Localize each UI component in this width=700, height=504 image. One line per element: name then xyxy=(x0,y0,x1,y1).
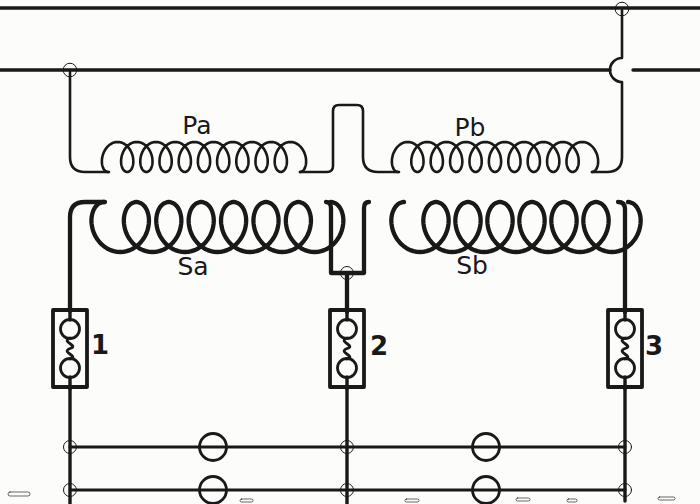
fuse-terminal-bottom xyxy=(61,359,80,378)
caption-remnant xyxy=(240,499,253,502)
secondary-left-lead-wire xyxy=(70,202,105,311)
scanned-schematic-page: Pa Pb Sa Sb 1 2 3 xyxy=(0,0,700,504)
fuse-block-3 xyxy=(608,308,642,501)
secondary-center-tap-wire xyxy=(326,202,369,312)
label-fuse-2: 2 xyxy=(370,331,388,361)
label-fuse-3: 3 xyxy=(645,331,663,361)
caption-remnant xyxy=(658,497,675,500)
caption-remnant xyxy=(567,499,577,502)
fuse-terminal-top xyxy=(616,320,635,339)
caption-remnant xyxy=(405,499,419,502)
caption-remnant xyxy=(8,492,30,496)
secondary-coil-sa xyxy=(91,202,343,252)
secondary-right-lead-wire xyxy=(618,202,625,312)
label-secondary-coil-a: Sa xyxy=(177,252,208,281)
transformer-circuit-diagram: Pa Pb Sa Sb 1 2 3 xyxy=(0,0,700,504)
fuse-element-wire xyxy=(67,338,73,359)
secondary-coil-sb xyxy=(391,202,640,252)
primary-coil-pb xyxy=(392,142,598,172)
fuse-terminal-bottom xyxy=(616,359,635,378)
fuse-element-wire xyxy=(622,338,628,359)
fuse-terminal-top xyxy=(338,320,357,339)
caption-remnant xyxy=(516,498,530,501)
primary-center-link-wire xyxy=(300,105,399,172)
label-fuse-1: 1 xyxy=(91,330,109,360)
supply-bus-lines xyxy=(0,2,700,77)
fuse-block-1 xyxy=(53,308,87,504)
fuse-element-wire xyxy=(344,338,350,359)
fuse-terminal-top xyxy=(61,320,80,339)
label-primary-coil-a: Pa xyxy=(182,111,211,140)
primary-coil-pa xyxy=(102,142,306,172)
fuse-terminal-bottom xyxy=(338,359,357,378)
label-secondary-coil-b: Sb xyxy=(456,251,488,280)
secondary-winding-circuit xyxy=(70,202,641,312)
primary-feed-right-wire-with-hop xyxy=(592,10,622,172)
primary-winding-circuit xyxy=(70,10,622,172)
label-primary-coil-b: Pb xyxy=(455,113,486,142)
fuse-block-2 xyxy=(330,308,364,504)
